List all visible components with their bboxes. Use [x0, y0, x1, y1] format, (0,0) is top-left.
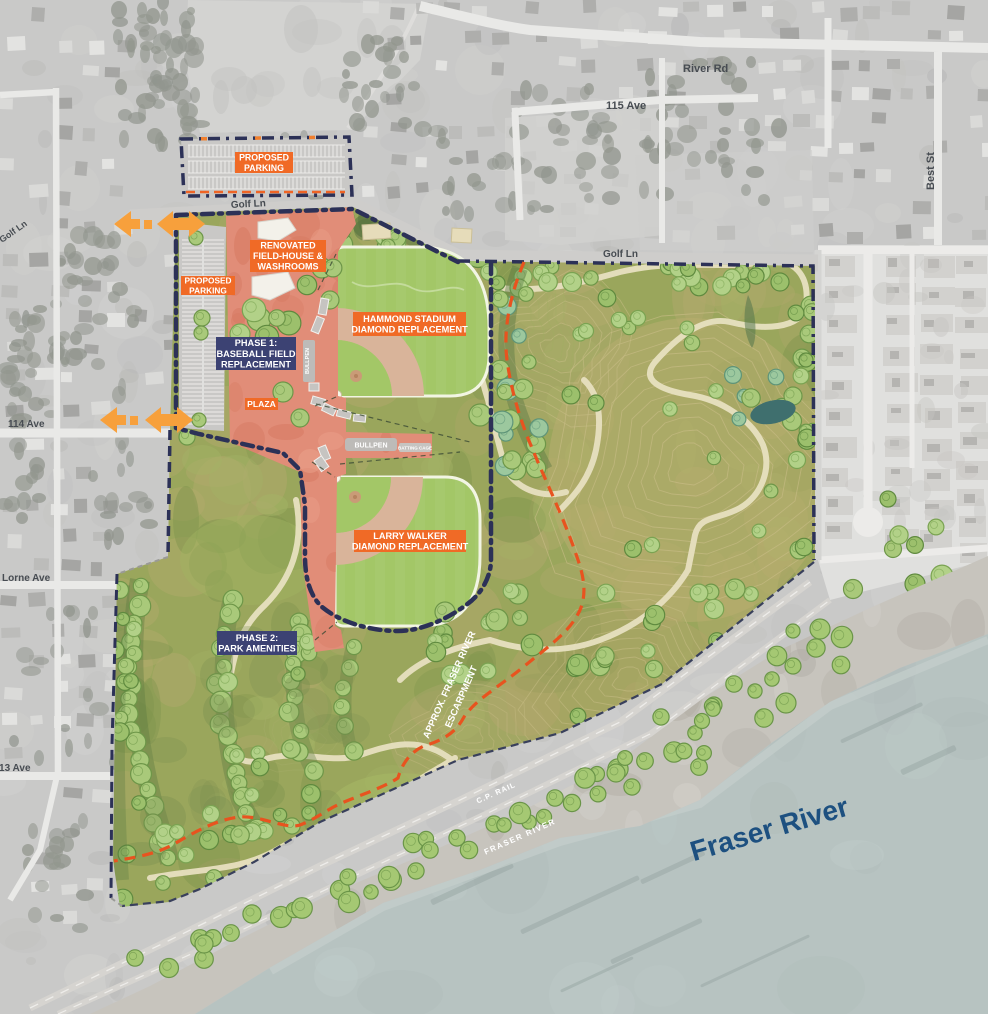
svg-text:Lorne Ave: Lorne Ave [2, 573, 51, 584]
svg-text:RENOVATED: RENOVATED [260, 241, 316, 251]
svg-text:LARRY WALKER: LARRY WALKER [373, 531, 447, 541]
svg-text:Golf Ln: Golf Ln [603, 249, 638, 260]
svg-text:BULLPEN: BULLPEN [305, 348, 311, 374]
svg-text:114 Ave: 114 Ave [8, 419, 45, 430]
svg-text:BATTING CAGE: BATTING CAGE [398, 446, 432, 451]
svg-text:113 Ave: 113 Ave [0, 763, 31, 774]
svg-text:REPLACEMENT: REPLACEMENT [221, 360, 291, 370]
svg-text:BASEBALL FIELD: BASEBALL FIELD [217, 349, 296, 359]
svg-text:PHASE 2:: PHASE 2: [236, 633, 278, 643]
svg-text:River Rd: River Rd [683, 63, 728, 75]
svg-text:PARKING: PARKING [189, 285, 227, 295]
svg-text:WASHROOMS: WASHROOMS [257, 262, 318, 272]
svg-text:Golf Ln: Golf Ln [231, 198, 267, 211]
svg-text:PARKING: PARKING [244, 163, 284, 173]
svg-text:115 Ave: 115 Ave [606, 100, 646, 112]
svg-text:PROPOSED: PROPOSED [184, 276, 231, 286]
svg-text:PROPOSED: PROPOSED [239, 153, 289, 163]
svg-text:DIAMOND REPLACEMENT: DIAMOND REPLACEMENT [351, 325, 468, 335]
svg-text:PARK AMENITIES: PARK AMENITIES [218, 644, 296, 654]
svg-text:BULLPEN: BULLPEN [354, 443, 387, 450]
svg-text:Best St: Best St [925, 152, 937, 190]
svg-text:DIAMOND REPLACEMENT: DIAMOND REPLACEMENT [352, 542, 469, 552]
svg-text:FIELD-HOUSE &: FIELD-HOUSE & [253, 251, 324, 261]
svg-text:PLAZA: PLAZA [247, 399, 276, 409]
svg-text:PHASE 1:: PHASE 1: [235, 338, 277, 348]
svg-text:HAMMOND STADIUM: HAMMOND STADIUM [363, 314, 456, 324]
